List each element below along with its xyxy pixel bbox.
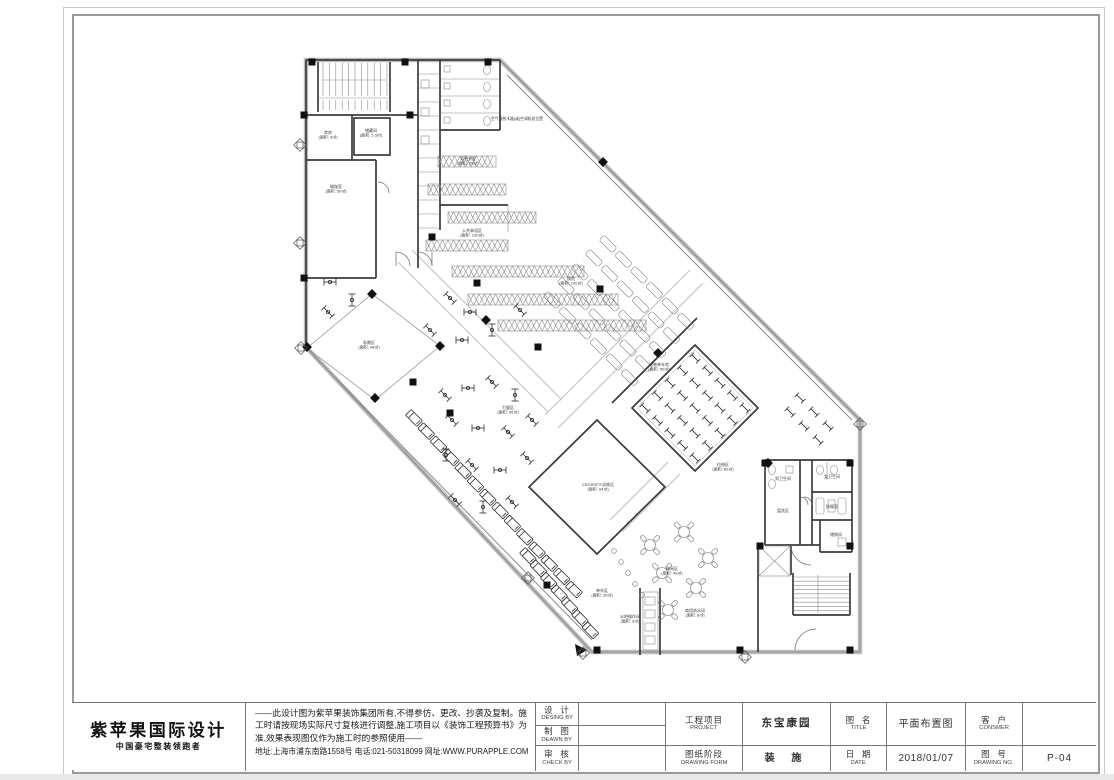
field-form-label: 图纸阶段 DRAWING FORM xyxy=(665,745,742,771)
design-by-en: DESING BY xyxy=(541,715,573,721)
field-check-by-label: 审 核 CHECK BY xyxy=(535,745,578,771)
field-title-value: 平面布置图 xyxy=(886,703,965,745)
title-value: 平面布置图 xyxy=(899,719,954,730)
field-drawn-by-value xyxy=(578,725,665,745)
drawing-no-value: P-04 xyxy=(1047,753,1072,764)
date-cn: 日 期 xyxy=(846,750,872,759)
form-value: 装 施 xyxy=(765,753,809,764)
date-value: 2018/01/07 xyxy=(898,753,953,764)
field-check-by-value xyxy=(578,745,665,771)
page-bottom-strip xyxy=(0,774,1114,780)
drawing-sheet: { "logo": { "name": "紫苹果国际设计", "tagline"… xyxy=(0,0,1114,780)
company-logo: 紫苹果国际设计 中国豪宅整装领跑者 xyxy=(72,703,245,771)
field-form-value: 装 施 xyxy=(742,745,830,771)
field-design-by-label: 设 计 DESING BY xyxy=(535,703,578,725)
field-drawn-by-label: 制 图 DEAWN BY xyxy=(535,725,578,745)
check-by-cn: 审 核 xyxy=(544,750,570,759)
drawing-no-cn: 图 号 xyxy=(981,750,1007,759)
disclaimer-cell: ——此设计图为紫苹果装饰集团所有,不得参仿、更改、抄袭及复制。施工时请按现场实际… xyxy=(245,703,535,771)
disclaimer-text: ——此设计图为紫苹果装饰集团所有,不得参仿、更改、抄袭及复制。施工时请按现场实际… xyxy=(255,707,527,744)
project-value: 东宝康园 xyxy=(762,718,812,730)
form-cn: 图纸阶段 xyxy=(685,750,723,759)
drawing-no-en: DRAWING NO. xyxy=(974,760,1014,766)
drawn-by-en: DEAWN BY xyxy=(542,737,573,743)
field-drawing-no-label: 图 号 DRAWING NO. xyxy=(965,745,1022,771)
company-name: 紫苹果国际设计 xyxy=(90,722,227,741)
field-date-label: 日 期 DATE xyxy=(830,745,886,771)
drawing-frame-inner xyxy=(72,14,1100,774)
consumer-en: CONSMER xyxy=(979,725,1009,731)
title-en: TITLE xyxy=(851,725,867,731)
field-project-label: 工程项目 PROJECT xyxy=(665,703,742,745)
field-drawing-no-value: P-04 xyxy=(1022,745,1096,771)
drawn-by-cn: 制 图 xyxy=(544,727,570,736)
check-by-en: CHECK BY xyxy=(542,760,572,766)
field-design-by-value xyxy=(578,703,665,725)
form-en: DRAWING FORM xyxy=(681,760,727,766)
field-title-label: 图 名 TITLE xyxy=(830,703,886,745)
field-consumer-label: 客 户 CONSMER xyxy=(965,703,1022,745)
company-tagline: 中国豪宅整装领跑者 xyxy=(116,743,202,752)
field-consumer-value xyxy=(1022,703,1096,745)
company-contact: 地址:上海市浦东南路1558号 电话:021-50318099 网址:WWW.P… xyxy=(255,748,528,757)
date-en: DATE xyxy=(851,760,866,766)
field-project-value: 东宝康园 xyxy=(742,703,830,745)
title-block: 紫苹果国际设计 中国豪宅整装领跑者 ——此设计图为紫苹果装饰集团所有,不得参仿、… xyxy=(72,702,1096,770)
project-en: PROJECT xyxy=(690,725,717,731)
field-date-value: 2018/01/07 xyxy=(886,745,965,771)
